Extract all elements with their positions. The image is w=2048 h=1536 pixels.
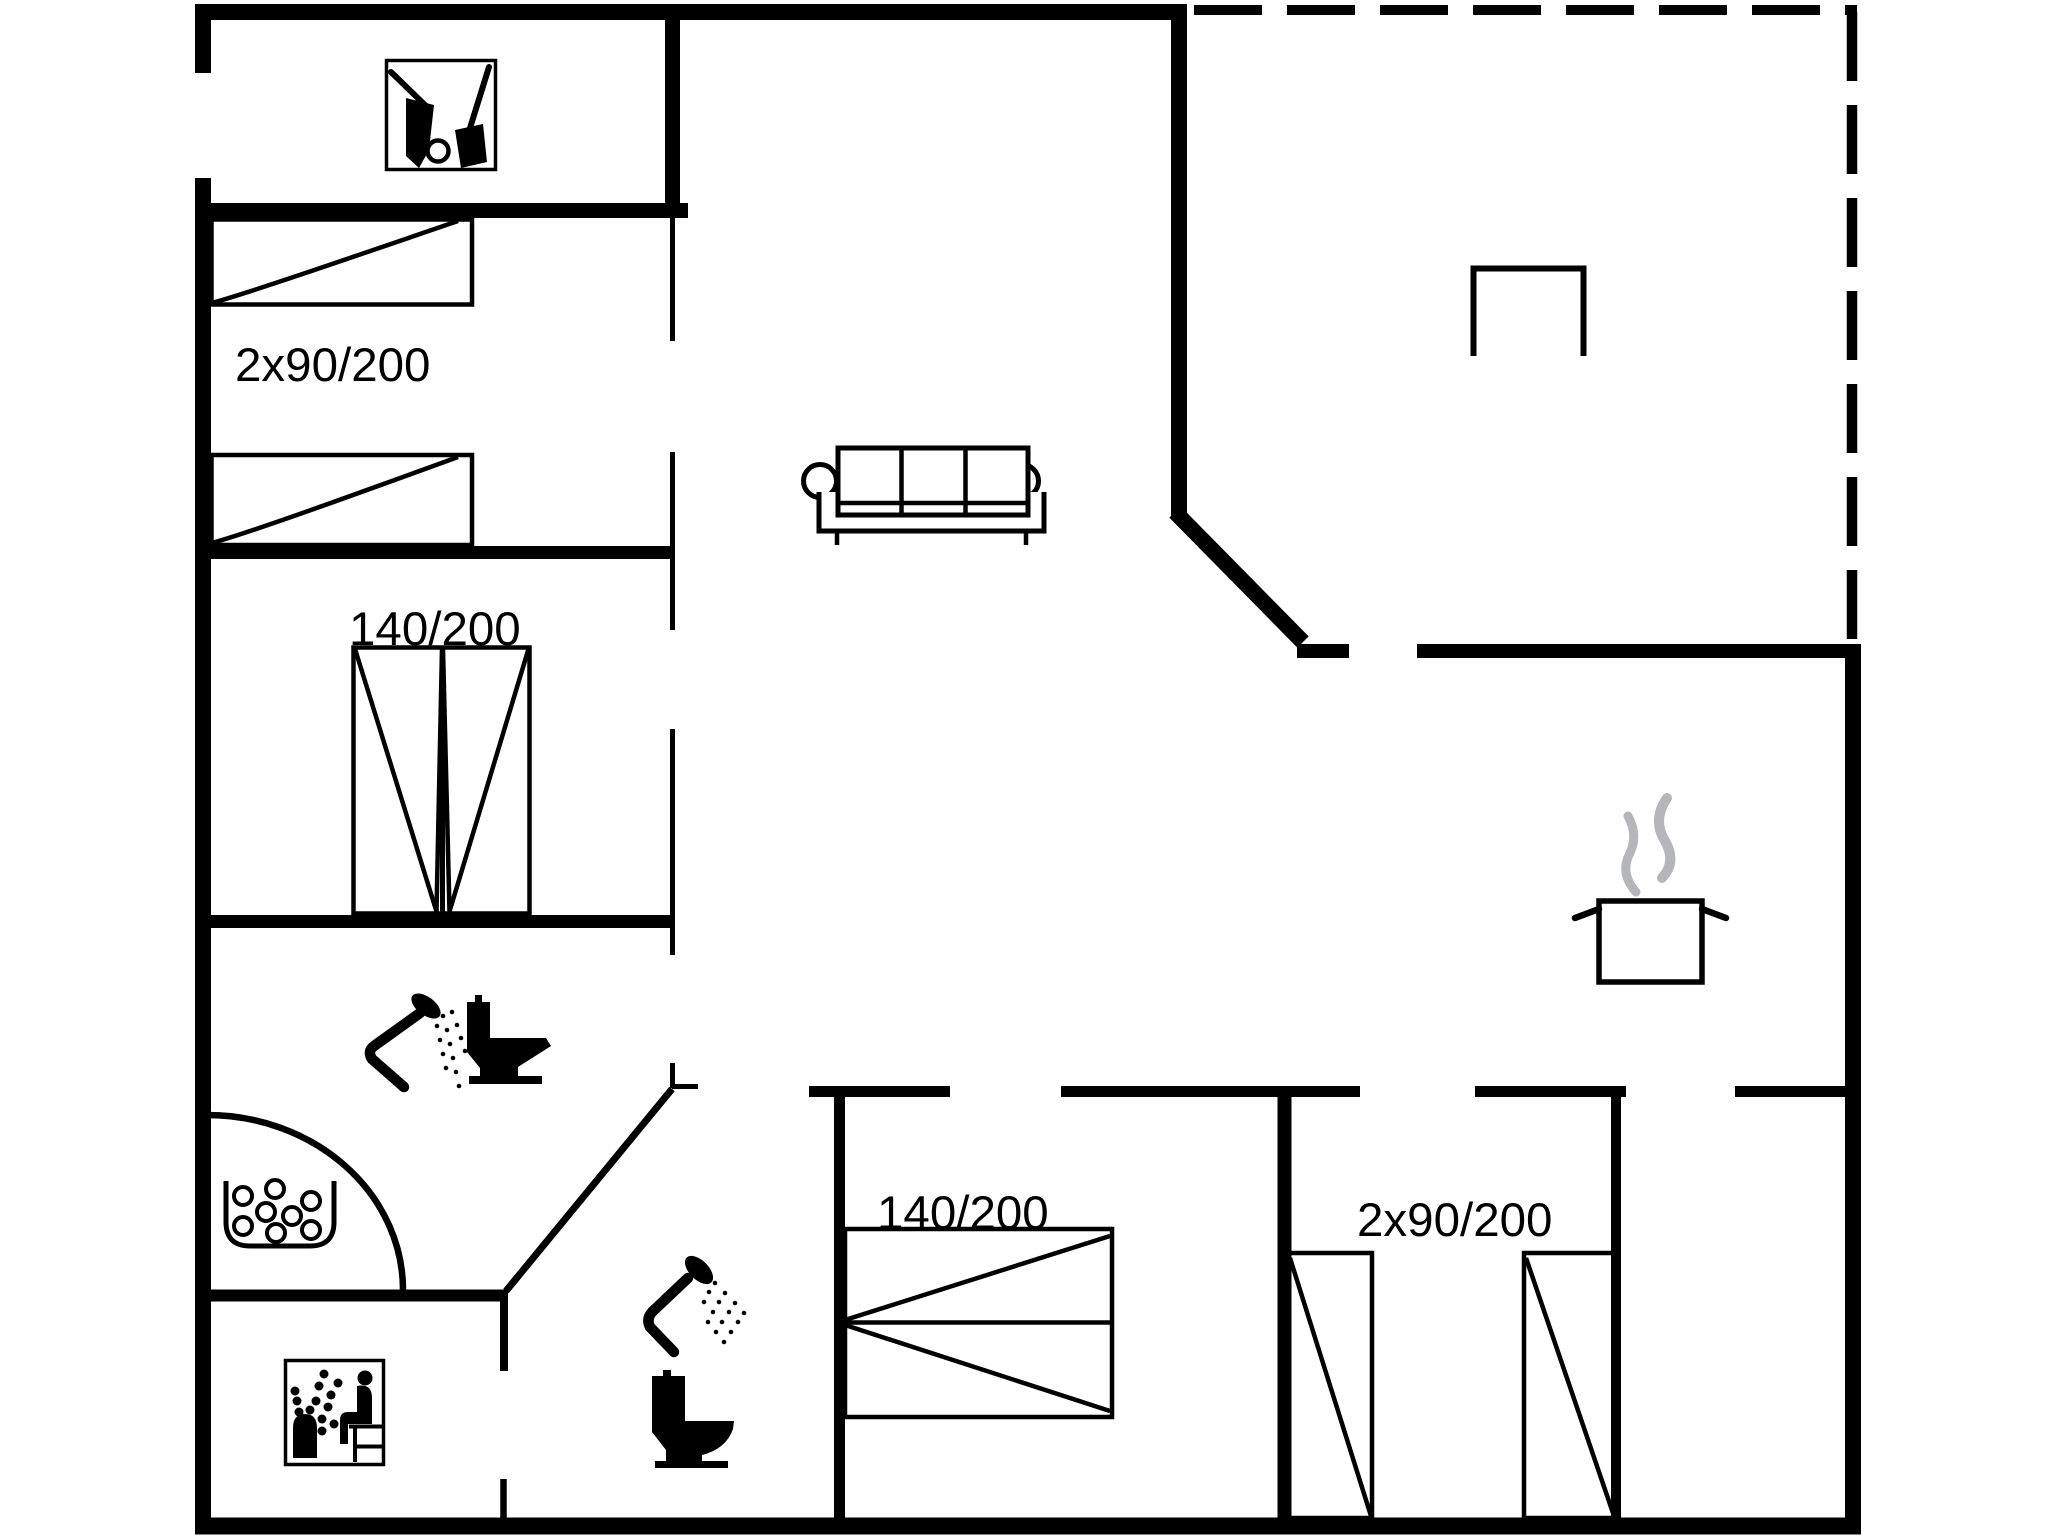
svg-text:2x90/200: 2x90/200: [1357, 1194, 1552, 1247]
svg-text:2x90/200: 2x90/200: [235, 339, 430, 392]
svg-text:140/200: 140/200: [877, 1187, 1049, 1240]
svg-text:140/200: 140/200: [349, 603, 521, 656]
